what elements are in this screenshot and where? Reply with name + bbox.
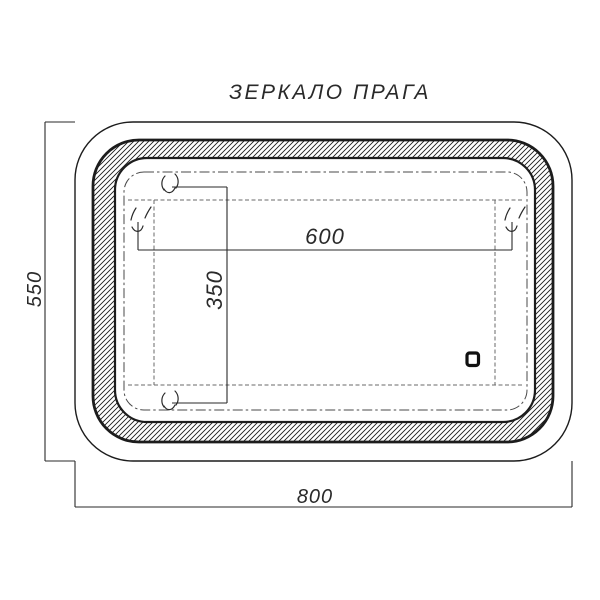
drawing-title: ЗЕРКАЛО ПРАГА bbox=[229, 81, 431, 104]
technical-drawing-canvas: ЗЕРКАЛО ПРАГА bbox=[0, 0, 600, 600]
arrow-600-left-icon bbox=[131, 207, 151, 231]
dim-350-label: 350 bbox=[202, 270, 227, 310]
dim-550-lines bbox=[45, 122, 75, 461]
mirror-drawing-svg: ЗЕРКАЛО ПРАГА bbox=[0, 0, 600, 600]
frame-inner-edge bbox=[115, 158, 535, 422]
dim-800-label: 800 bbox=[297, 486, 333, 508]
arrow-350-bottom-icon bbox=[162, 391, 178, 410]
dim-600-label: 600 bbox=[305, 224, 345, 249]
dimension-arrowheads bbox=[131, 174, 525, 410]
led-strip-centerline bbox=[124, 172, 527, 410]
arrow-350-top-icon bbox=[162, 174, 178, 193]
dim-550-label: 550 bbox=[24, 271, 46, 307]
power-sensor-icon bbox=[467, 353, 479, 366]
arrow-600-right-icon bbox=[505, 207, 525, 231]
